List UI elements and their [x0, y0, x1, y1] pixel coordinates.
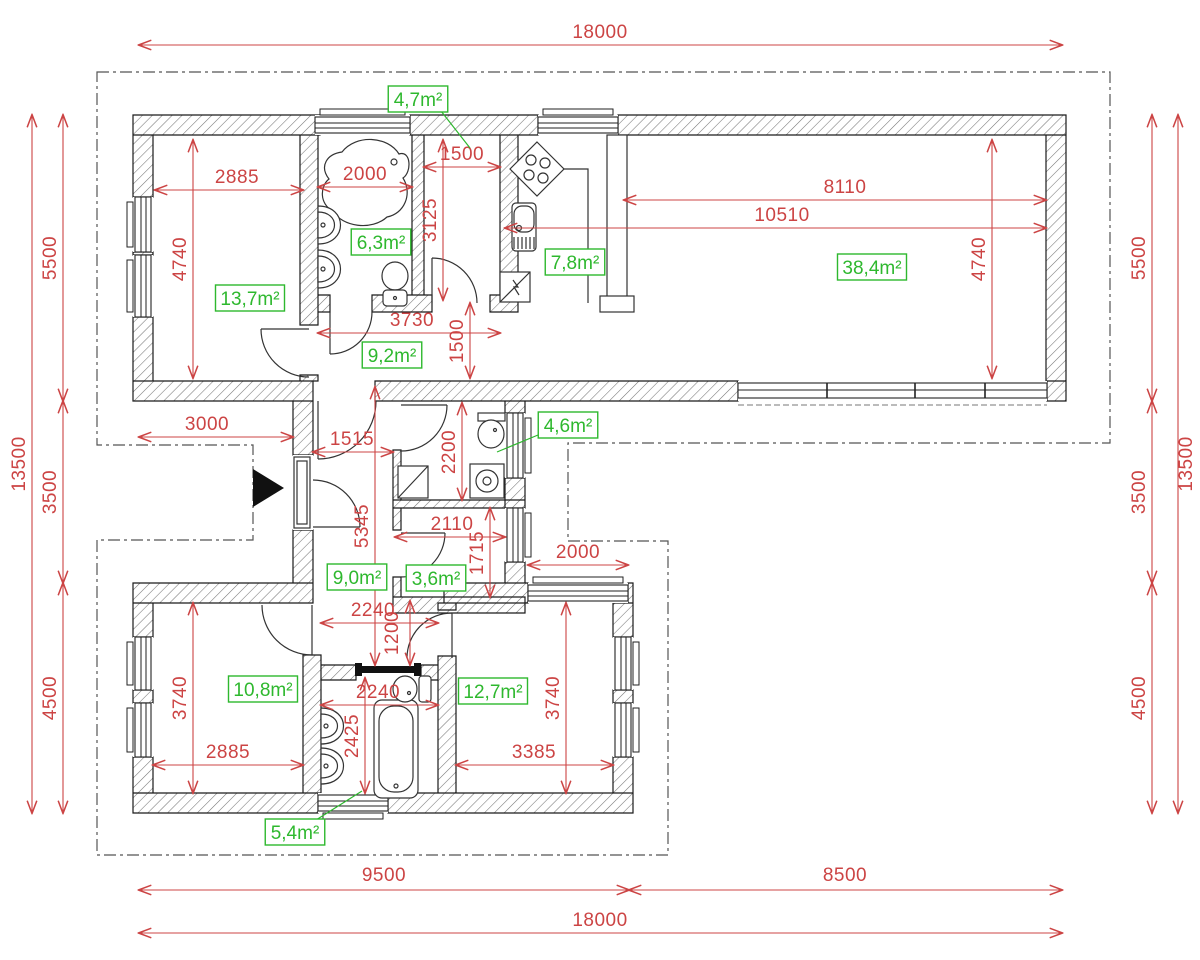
window-icon: [613, 703, 639, 757]
floor-plan-page: 1800028852000150081101051037303000151521…: [0, 0, 1200, 960]
dimension-1500: 1500: [447, 303, 470, 378]
dimension-text: 2885: [215, 167, 259, 188]
window-icon: [315, 109, 410, 135]
dimension-text: 2000: [343, 164, 387, 185]
dimension-8500: 8500: [629, 865, 1062, 890]
window-icon: [528, 577, 628, 603]
dimension-4500: 4500: [1129, 583, 1152, 813]
door-bathroom-5-4: [355, 663, 421, 676]
shower-tray-icon: [398, 466, 428, 498]
dimension-4740: 4740: [969, 140, 992, 378]
room-area-label: 6,3m²: [351, 229, 411, 255]
window-icon: [505, 508, 531, 562]
room-area-label: 12,7m²: [459, 678, 528, 704]
bathtub-icon: [374, 700, 418, 798]
room-area-text: 6,3m²: [357, 233, 406, 254]
dimension-2200: 2200: [439, 403, 462, 500]
dimension-1500: 1500: [424, 144, 500, 167]
room-area-label: 9,0m²: [327, 564, 387, 590]
dimension-text: 3500: [40, 470, 61, 514]
window-icon: [127, 197, 153, 252]
room-area-text: 9,0m²: [333, 568, 382, 589]
dimension-3500: 3500: [1129, 401, 1152, 583]
dimension-8110: 8110: [624, 177, 1046, 200]
dimension-text: 1500: [447, 319, 468, 363]
washing-machine-icon: [470, 464, 504, 498]
dimension-18000: 18000: [139, 22, 1062, 45]
dimension-text: 8110: [824, 177, 867, 198]
door-hallway: [432, 258, 477, 303]
door-bedroom-12-7: [407, 613, 452, 658]
room-area-text: 7,8m²: [551, 253, 600, 274]
dimension-3730: 3730: [318, 310, 500, 333]
toilet-icon: [382, 262, 408, 306]
dimension-5500: 5500: [1129, 115, 1152, 401]
dimension-text: 4740: [969, 237, 990, 281]
dimension-2885: 2885: [155, 167, 303, 190]
dimension-text: 4500: [40, 676, 61, 720]
washbasin-icon: [321, 748, 344, 784]
door-room-13-7: [261, 329, 309, 377]
dimension-text: 9500: [362, 865, 406, 886]
room-area-label: 7,8m²: [545, 249, 605, 275]
dimension-text: 5345: [352, 504, 373, 548]
water-heater-icon: [500, 272, 530, 302]
dimension-text: 2240: [356, 682, 400, 703]
washbasin-icon: [318, 250, 341, 288]
dimension-text: 1200: [382, 611, 403, 655]
dimension-text: 5500: [1129, 236, 1150, 280]
dimension-text: 2885: [206, 742, 250, 763]
dimension-text: 5500: [40, 236, 61, 280]
dimension-text: 13500: [9, 436, 30, 491]
walls-layer: [133, 115, 1066, 813]
dimension-text: 4740: [170, 237, 191, 281]
room-area-text: 13,7m²: [220, 289, 279, 310]
door-bedroom-10-8: [262, 605, 312, 655]
dimension-2000: 2000: [528, 542, 628, 565]
room-area-text: 10,8m²: [233, 680, 292, 701]
dimension-1515: 1515: [313, 429, 393, 452]
dimension-13500: 13500: [1176, 115, 1197, 813]
dimension-4740: 4740: [170, 140, 193, 378]
room-area-text: 4,6m²: [544, 416, 593, 437]
dimension-13500: 13500: [9, 115, 32, 813]
dimension-10510: 10510: [505, 205, 1046, 228]
dimension-text: 4500: [1129, 676, 1150, 720]
dimension-text: 13500: [1176, 436, 1197, 491]
room-area-text: 12,7m²: [463, 682, 522, 703]
room-area-label: 10,8m²: [229, 676, 298, 702]
dimension-text: 2200: [439, 430, 460, 474]
dimension-text: 2000: [556, 542, 600, 563]
dimension-text: 18000: [572, 910, 627, 931]
window-icon: [127, 703, 153, 757]
dimension-text: 3740: [543, 676, 564, 720]
dimension-text: 2425: [342, 714, 363, 758]
kitchen-sink-icon: [512, 203, 536, 251]
dimension-3500: 3500: [40, 401, 63, 583]
dimension-text: 3385: [512, 742, 556, 763]
dimension-3385: 3385: [456, 742, 613, 765]
dimension-text: 1515: [330, 429, 374, 450]
dimension-text: 8500: [823, 865, 867, 886]
room-area-text: 9,2m²: [368, 346, 417, 367]
floor-plan-drawing: 1800028852000150081101051037303000151521…: [0, 0, 1200, 960]
dimension-3000: 3000: [139, 414, 293, 437]
entrance-arrow-icon: [253, 469, 284, 507]
room-area-label: 13,7m²: [216, 285, 285, 311]
dimension-text: 3500: [1129, 470, 1150, 514]
kitchen-counter: [560, 135, 634, 312]
dimension-text: 18000: [572, 22, 627, 43]
window-icon: [127, 255, 153, 317]
room-area-text: 38,4m²: [842, 258, 901, 279]
dimension-5500: 5500: [40, 115, 63, 401]
dimension-4500: 4500: [40, 583, 63, 813]
dimension-text: 10510: [754, 205, 809, 226]
window-icon: [613, 637, 639, 690]
dimension-18000: 18000: [139, 910, 1062, 933]
dimension-text: 3000: [185, 414, 229, 435]
washbasin-icon: [321, 708, 344, 744]
dimension-text: 1715: [467, 531, 488, 575]
windows-layer: [127, 109, 1047, 819]
dimension-9500: 9500: [139, 865, 629, 890]
room-area-text: 5,4m²: [271, 823, 320, 844]
room-area-text: 4,7m²: [394, 90, 443, 111]
window-icon: [538, 109, 618, 135]
room-area-label: 3,6m²: [406, 565, 466, 591]
front-door: [293, 455, 313, 530]
window-icon: [127, 637, 153, 690]
dimension-text: 3730: [390, 310, 434, 331]
room-area-label: 9,2m²: [362, 342, 422, 368]
glazing-window-icon: [738, 381, 1047, 405]
dimension-2885: 2885: [153, 742, 303, 765]
toilet-icon: [478, 413, 505, 448]
dimension-text: 3125: [420, 198, 441, 242]
dimension-text: 1500: [440, 144, 484, 165]
room-area-label: 38,4m²: [838, 254, 907, 280]
dimension-text: 3740: [170, 676, 191, 720]
window-icon: [505, 413, 531, 478]
room-area-text: 3,6m²: [412, 569, 461, 590]
